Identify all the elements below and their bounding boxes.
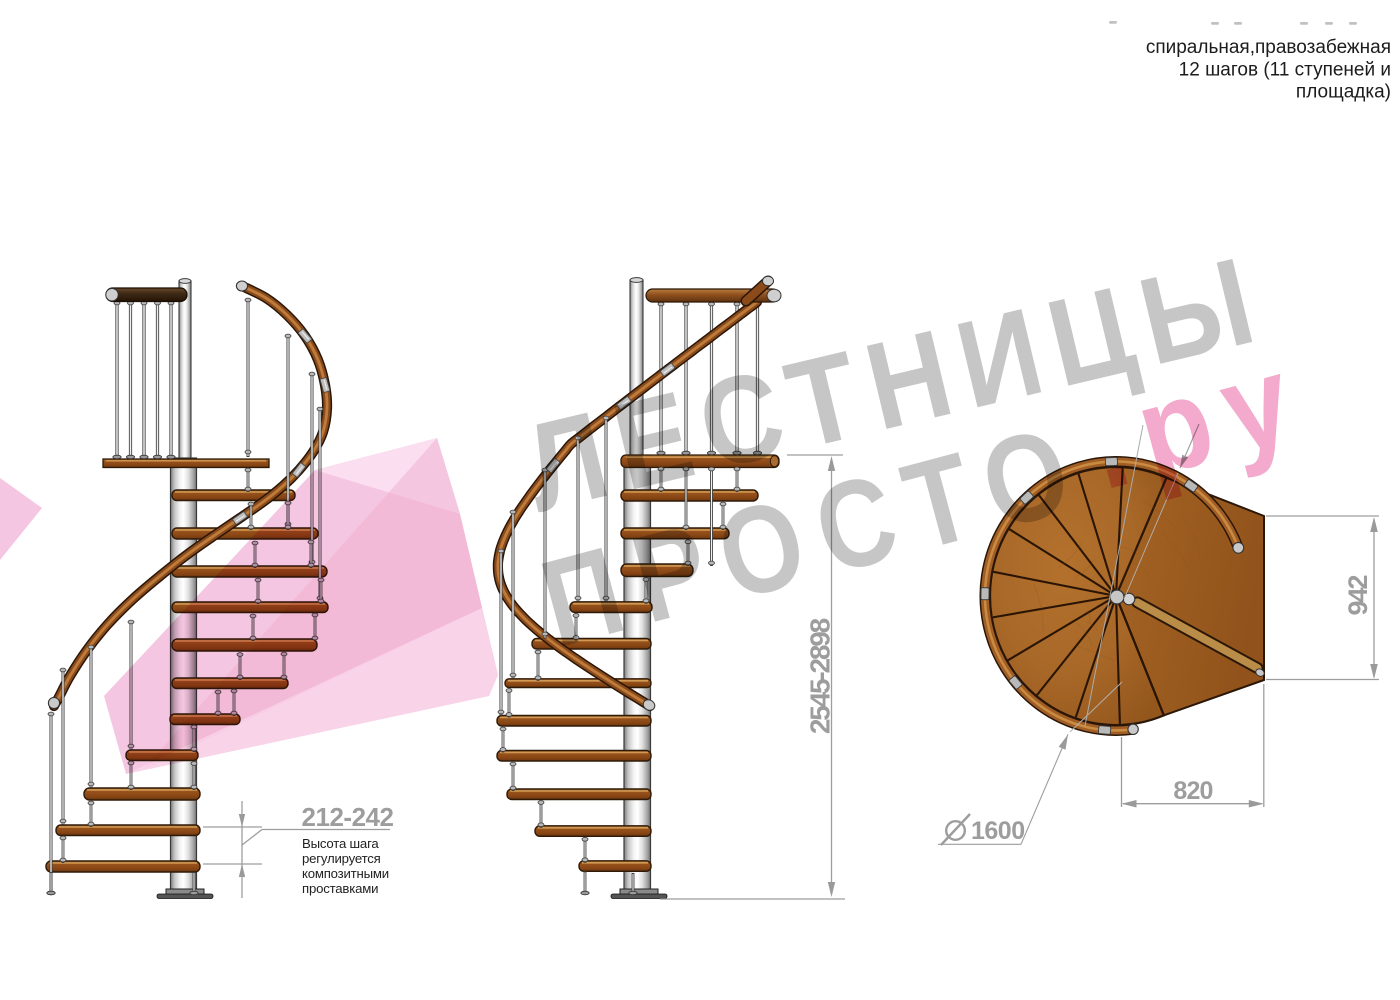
svg-text:12 шагов (11 ступеней и: 12 шагов (11 ступеней и — [1179, 59, 1391, 80]
svg-text:942: 942 — [1343, 575, 1373, 615]
svg-text:Высота шага: Высота шага — [302, 836, 379, 851]
svg-text:композитными: композитными — [302, 866, 389, 881]
svg-text:1600: 1600 — [971, 817, 1025, 845]
svg-text:проставками: проставками — [302, 881, 378, 896]
svg-text:регулируется: регулируется — [302, 851, 381, 866]
svg-text:площадка): площадка) — [1296, 82, 1391, 103]
svg-text:спиральная,правозабежная: спиральная,правозабежная — [1146, 37, 1391, 58]
svg-text:820: 820 — [1173, 777, 1212, 805]
svg-text:2545-2898: 2545-2898 — [805, 618, 836, 734]
svg-text:212-242: 212-242 — [302, 802, 394, 832]
